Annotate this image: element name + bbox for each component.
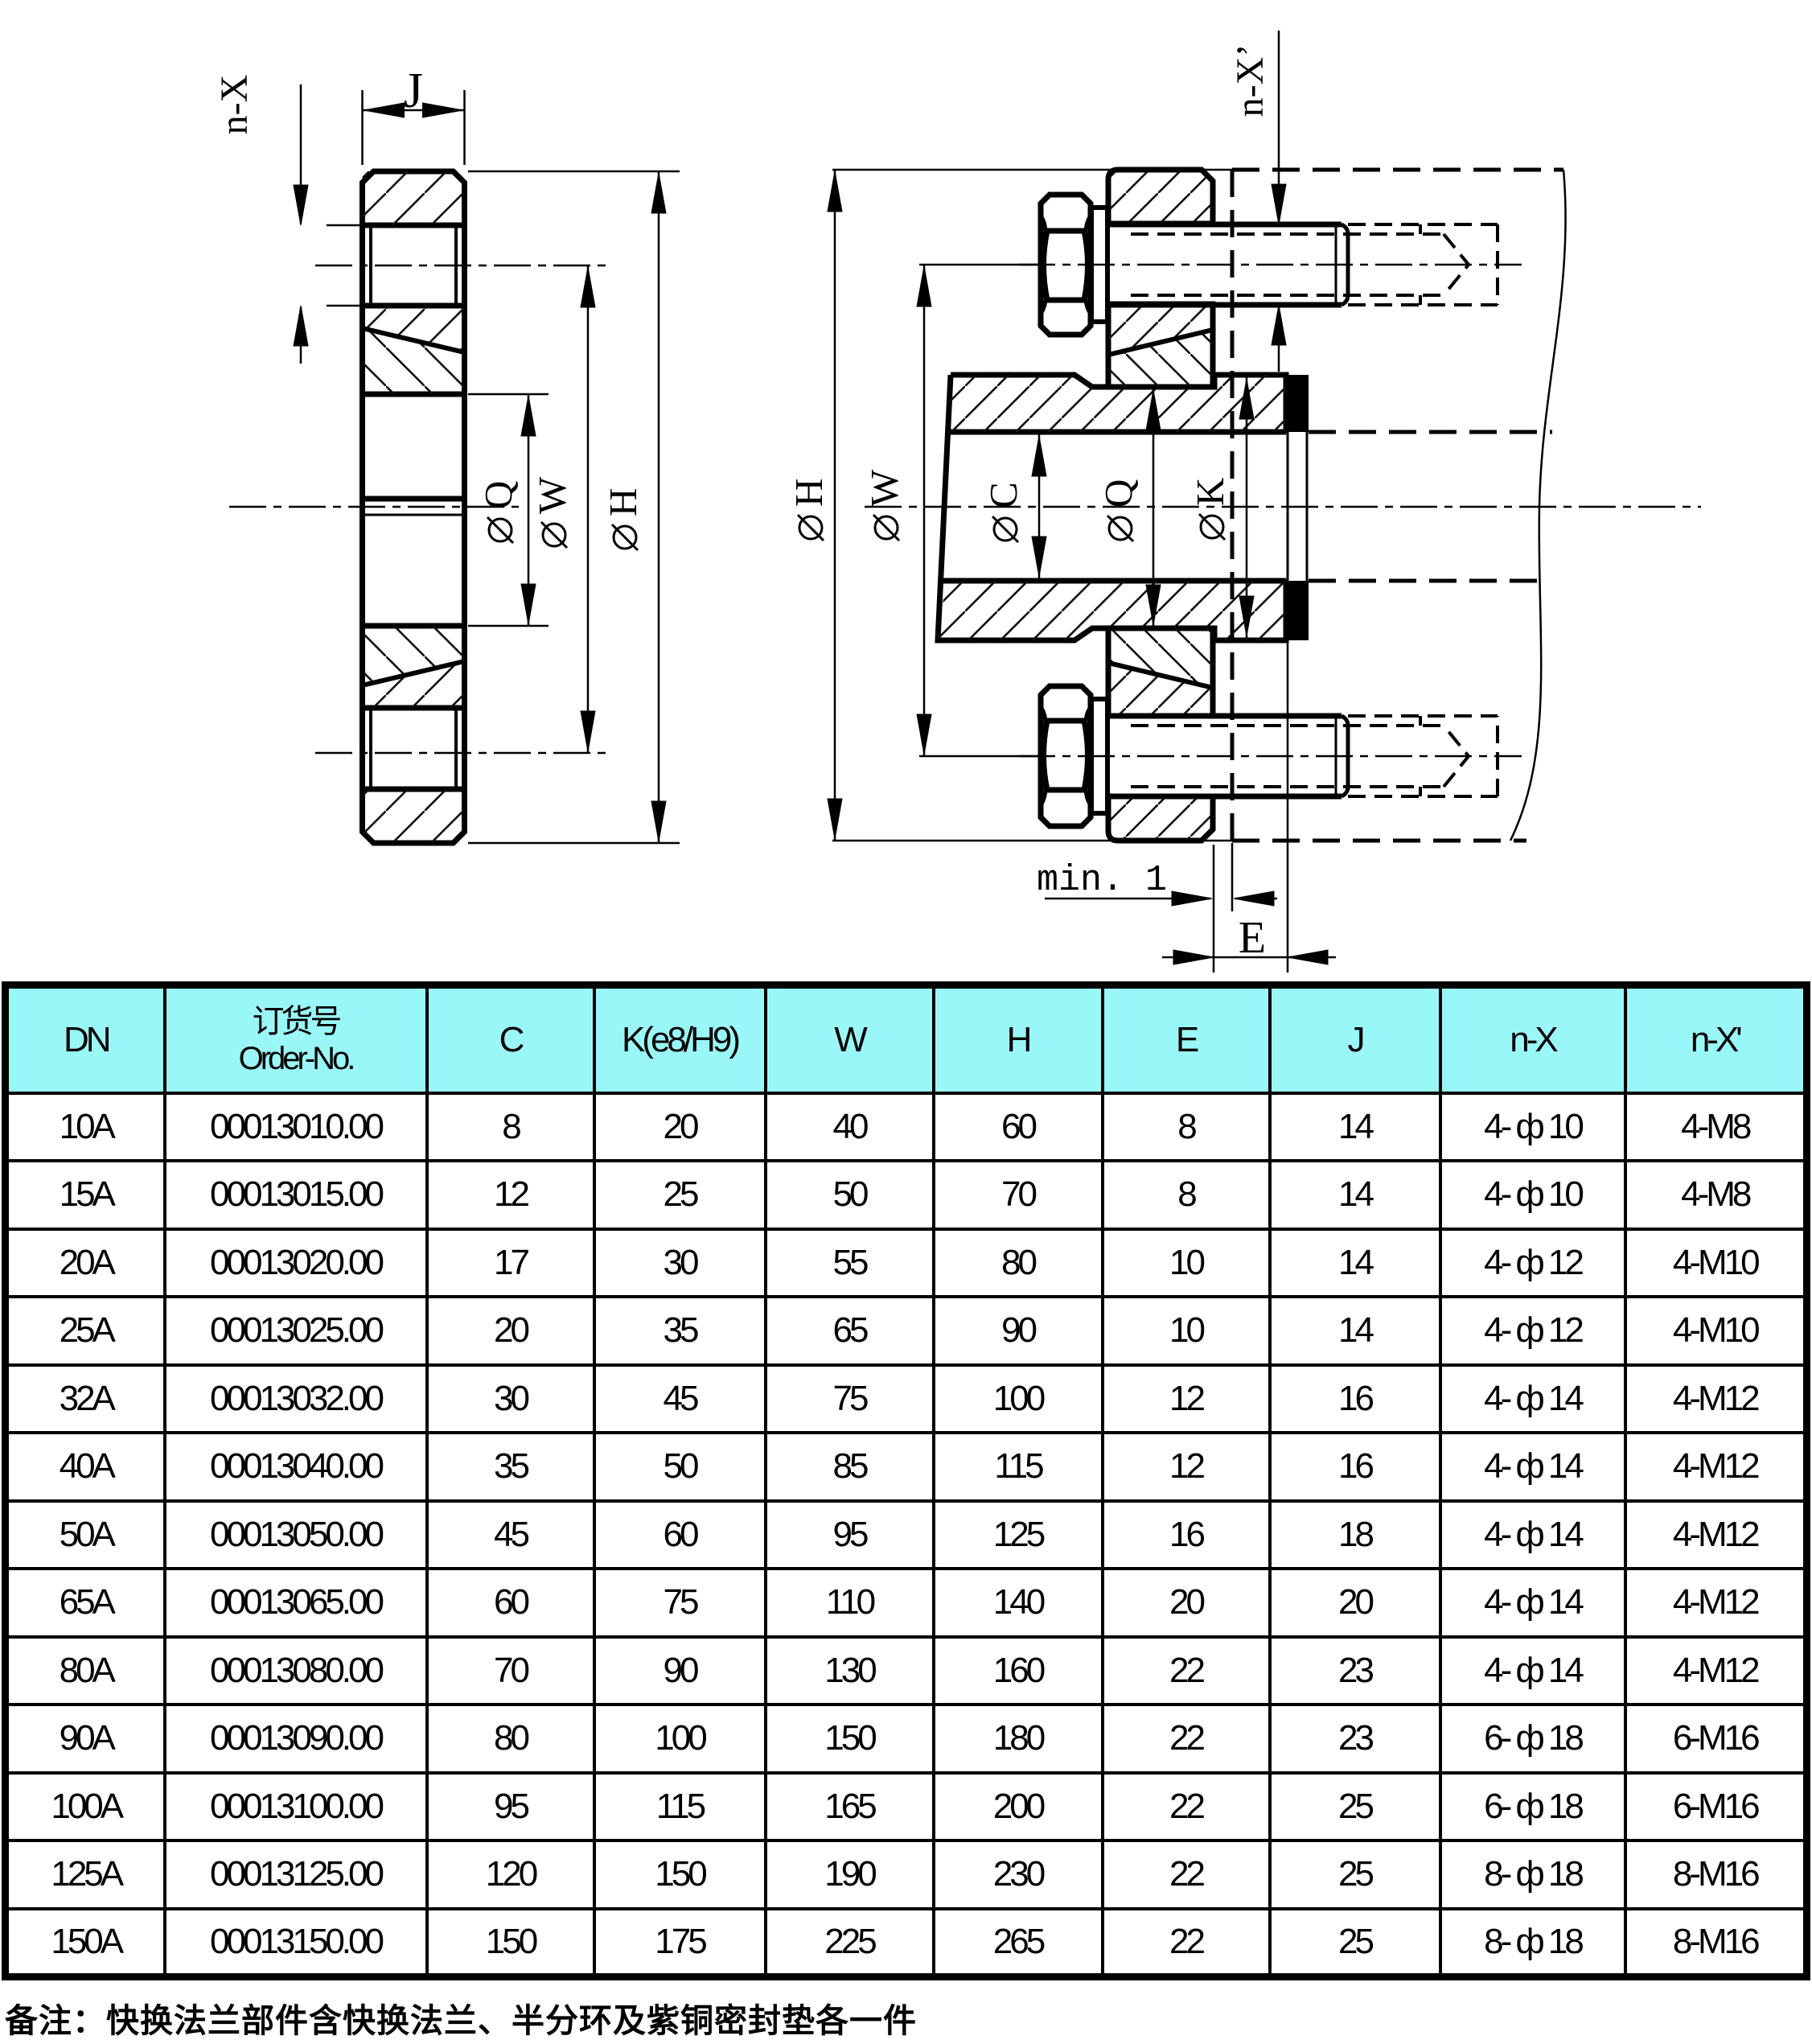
svg-text:W: W <box>862 469 906 507</box>
svg-text:H: H <box>601 488 645 516</box>
svg-text:n-X: n-X <box>213 75 256 135</box>
svg-text:Q: Q <box>476 481 520 509</box>
svg-text:C: C <box>981 482 1025 508</box>
svg-text:K: K <box>1188 478 1232 506</box>
svg-text:W: W <box>530 476 574 514</box>
svg-text:E: E <box>1239 913 1266 963</box>
svg-text:min. 1: min. 1 <box>1037 860 1167 901</box>
svg-text:Q: Q <box>1096 479 1140 508</box>
svg-text:n-X’: n-X’ <box>1229 44 1272 117</box>
svg-text:J: J <box>404 64 423 118</box>
svg-text:H: H <box>787 479 831 507</box>
